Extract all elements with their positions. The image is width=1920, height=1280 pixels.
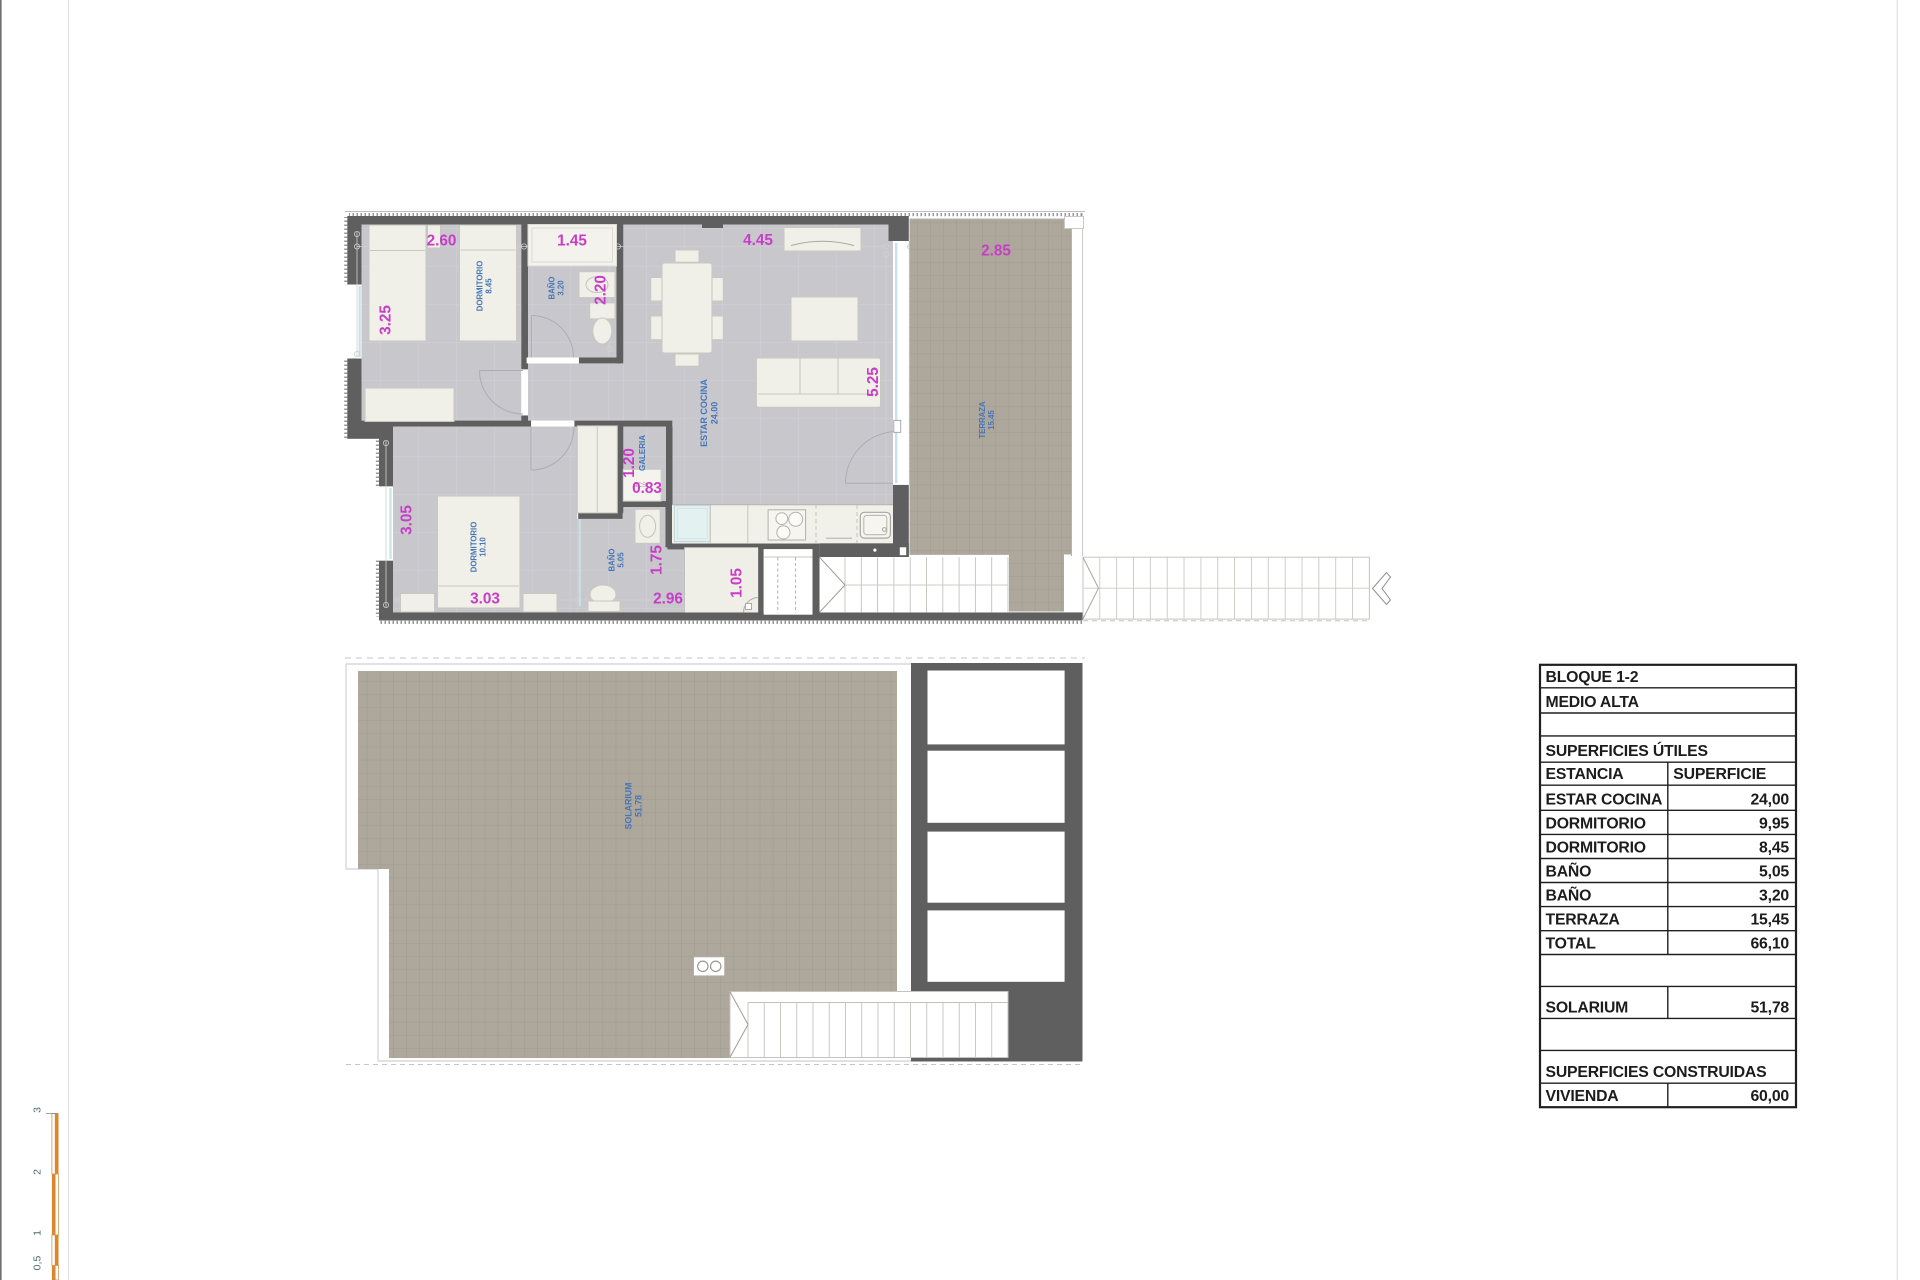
svg-text:24.00: 24.00: [709, 402, 719, 425]
svg-text:5,05: 5,05: [1759, 864, 1789, 881]
svg-text:51,78: 51,78: [1750, 999, 1789, 1016]
svg-text:ESTANCIA: ESTANCIA: [1546, 766, 1624, 783]
svg-text:1.05: 1.05: [729, 568, 746, 598]
svg-text:DORMITORIO: DORMITORIO: [475, 261, 484, 312]
svg-text:1.45: 1.45: [557, 233, 587, 250]
svg-text:DORMITORIO: DORMITORIO: [1546, 840, 1646, 857]
svg-text:0.83: 0.83: [632, 480, 662, 497]
svg-text:1.20: 1.20: [621, 448, 638, 478]
svg-text:BAÑO: BAÑO: [547, 277, 556, 300]
svg-text:3.25: 3.25: [378, 305, 395, 335]
svg-text:1.75: 1.75: [649, 545, 666, 575]
svg-text:51.78: 51.78: [634, 795, 644, 817]
svg-text:8.45: 8.45: [484, 278, 493, 294]
svg-text:5.25: 5.25: [865, 367, 882, 397]
svg-text:BAÑO: BAÑO: [607, 549, 616, 572]
svg-text:24,00: 24,00: [1750, 791, 1789, 808]
svg-text:60,00: 60,00: [1750, 1088, 1789, 1105]
svg-text:BLOQUE 1-2: BLOQUE 1-2: [1546, 669, 1639, 686]
svg-text:BAÑO: BAÑO: [1546, 861, 1592, 881]
svg-text:GALERIA: GALERIA: [638, 435, 647, 471]
svg-text:2.85: 2.85: [981, 243, 1011, 260]
svg-text:SUPERFICIE: SUPERFICIE: [1673, 766, 1766, 783]
svg-text:1: 1: [32, 1230, 44, 1236]
svg-text:10.10: 10.10: [478, 537, 487, 557]
svg-text:66,10: 66,10: [1750, 936, 1789, 953]
svg-text:SUPERFICIES CONSTRUIDAS: SUPERFICIES CONSTRUIDAS: [1546, 1064, 1767, 1081]
svg-text:SUPERFICIES ÚTILES: SUPERFICIES ÚTILES: [1546, 741, 1708, 760]
svg-text:SOLARIUM: SOLARIUM: [624, 783, 634, 830]
svg-text:DORMITORIO: DORMITORIO: [469, 522, 478, 573]
svg-text:4.45: 4.45: [743, 232, 773, 249]
svg-text:8,45: 8,45: [1759, 840, 1789, 857]
svg-text:2.20: 2.20: [593, 275, 610, 305]
svg-text:3: 3: [32, 1107, 44, 1113]
svg-text:15.45: 15.45: [987, 410, 996, 430]
svg-text:ESTAR COCINA: ESTAR COCINA: [1546, 791, 1663, 808]
svg-text:BAÑO: BAÑO: [1546, 885, 1592, 905]
svg-text:3.20: 3.20: [556, 280, 565, 296]
svg-text:DORMITORIO: DORMITORIO: [1546, 815, 1646, 832]
svg-text:TERRAZA: TERRAZA: [978, 401, 987, 439]
svg-text:2: 2: [32, 1169, 44, 1175]
svg-text:2.96: 2.96: [653, 591, 683, 608]
svg-text:SOLARIUM: SOLARIUM: [1546, 999, 1629, 1016]
svg-text:ESTAR COCINA: ESTAR COCINA: [699, 379, 709, 447]
svg-text:5.05: 5.05: [616, 552, 625, 568]
svg-text:VIVIENDA: VIVIENDA: [1546, 1088, 1619, 1105]
svg-text:15,45: 15,45: [1750, 912, 1789, 929]
svg-text:3,20: 3,20: [1759, 888, 1789, 905]
svg-text:3.03: 3.03: [470, 591, 500, 608]
svg-text:TERRAZA: TERRAZA: [1546, 912, 1620, 929]
svg-text:3.05: 3.05: [399, 505, 416, 535]
svg-text:2.60: 2.60: [427, 233, 457, 250]
svg-text:0,5: 0,5: [32, 1256, 44, 1271]
svg-text:MEDIO ALTA: MEDIO ALTA: [1546, 694, 1639, 711]
svg-text:9,95: 9,95: [1759, 815, 1789, 832]
svg-text:TOTAL: TOTAL: [1546, 936, 1597, 953]
